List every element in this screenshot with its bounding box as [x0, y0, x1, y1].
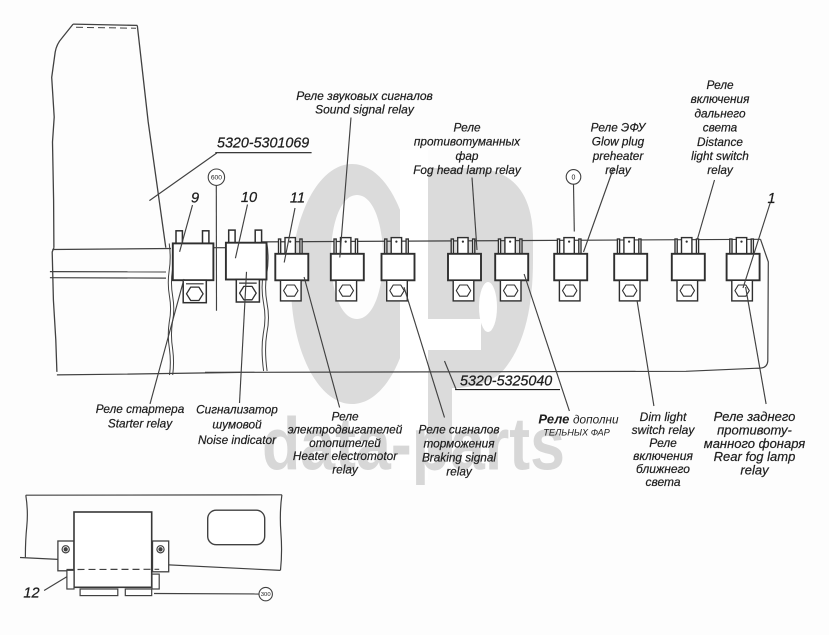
svg-text:0: 0: [572, 174, 576, 181]
svg-text:Реле стартера: Реле стартера: [96, 402, 185, 416]
svg-text:включения: включения: [691, 92, 750, 106]
svg-text:12: 12: [23, 586, 39, 602]
svg-text:switch relay: switch relay: [632, 423, 696, 437]
svg-text:300: 300: [261, 592, 272, 598]
svg-text:Noise indicator: Noise indicator: [198, 433, 277, 447]
svg-text:Реле: Реле: [331, 410, 359, 424]
svg-text:торможения: торможения: [423, 437, 495, 451]
svg-text:Sound signal relay: Sound signal relay: [315, 102, 415, 116]
svg-text:light switch: light switch: [691, 149, 749, 163]
svg-text:Реле: Реле: [649, 436, 677, 450]
svg-text:10: 10: [241, 190, 257, 206]
svg-text:5320-5325040: 5320-5325040: [460, 374, 552, 390]
svg-text:Реле: Реле: [453, 120, 481, 134]
svg-text:Реле дополни: Реле дополни: [538, 412, 619, 427]
svg-text:9: 9: [191, 190, 199, 206]
svg-text:relay: relay: [707, 163, 734, 177]
svg-text:фар: фар: [456, 149, 479, 163]
svg-text:Реле ЭФУ: Реле ЭФУ: [591, 120, 647, 134]
svg-text:ТЕЛЬНЫХ ФАР: ТЕЛЬНЫХ ФАР: [543, 427, 610, 437]
svg-text:Реле звуковых сигналов: Реле звуковых сигналов: [296, 89, 433, 103]
svg-text:Starter relay: Starter relay: [108, 417, 173, 431]
svg-text:Реле сигналов: Реле сигналов: [419, 423, 500, 437]
svg-text:Distance: Distance: [697, 135, 743, 149]
svg-text:Сигнализатор: Сигнализатор: [196, 403, 278, 417]
svg-text:11: 11: [290, 191, 305, 207]
svg-text:света: света: [703, 121, 738, 135]
svg-text:relay: relay: [605, 163, 632, 177]
svg-text:Dim light: Dim light: [640, 410, 687, 424]
svg-text:600: 600: [211, 175, 222, 182]
svg-text:Heater electromotor: Heater electromotor: [293, 449, 398, 463]
svg-text:Fog head lamp relay: Fog head lamp relay: [413, 163, 522, 177]
svg-text:ближнего: ближнего: [636, 462, 690, 476]
svg-text:relay: relay: [332, 462, 359, 476]
svg-text:data-parts: data-parts: [262, 403, 565, 486]
svg-text:дальнего: дальнего: [694, 106, 746, 120]
svg-text:Реле: Реле: [706, 78, 734, 92]
svg-text:Braking signal: Braking signal: [422, 451, 496, 465]
svg-text:включения: включения: [633, 449, 693, 463]
svg-text:relay: relay: [740, 463, 770, 478]
svg-text:шумовой: шумовой: [212, 418, 262, 432]
svg-text:Glow plug: Glow plug: [592, 135, 645, 149]
svg-text:5320-5301069: 5320-5301069: [217, 136, 309, 152]
svg-text:электродвигателей: электродвигателей: [288, 423, 403, 437]
svg-text:отопителей: отопителей: [309, 436, 381, 450]
svg-text:relay: relay: [446, 465, 473, 479]
svg-text:1: 1: [767, 191, 775, 207]
svg-text:preheater: preheater: [592, 149, 645, 163]
svg-text:противотуманных: противотуманных: [414, 135, 521, 149]
svg-text:света: света: [645, 475, 680, 489]
